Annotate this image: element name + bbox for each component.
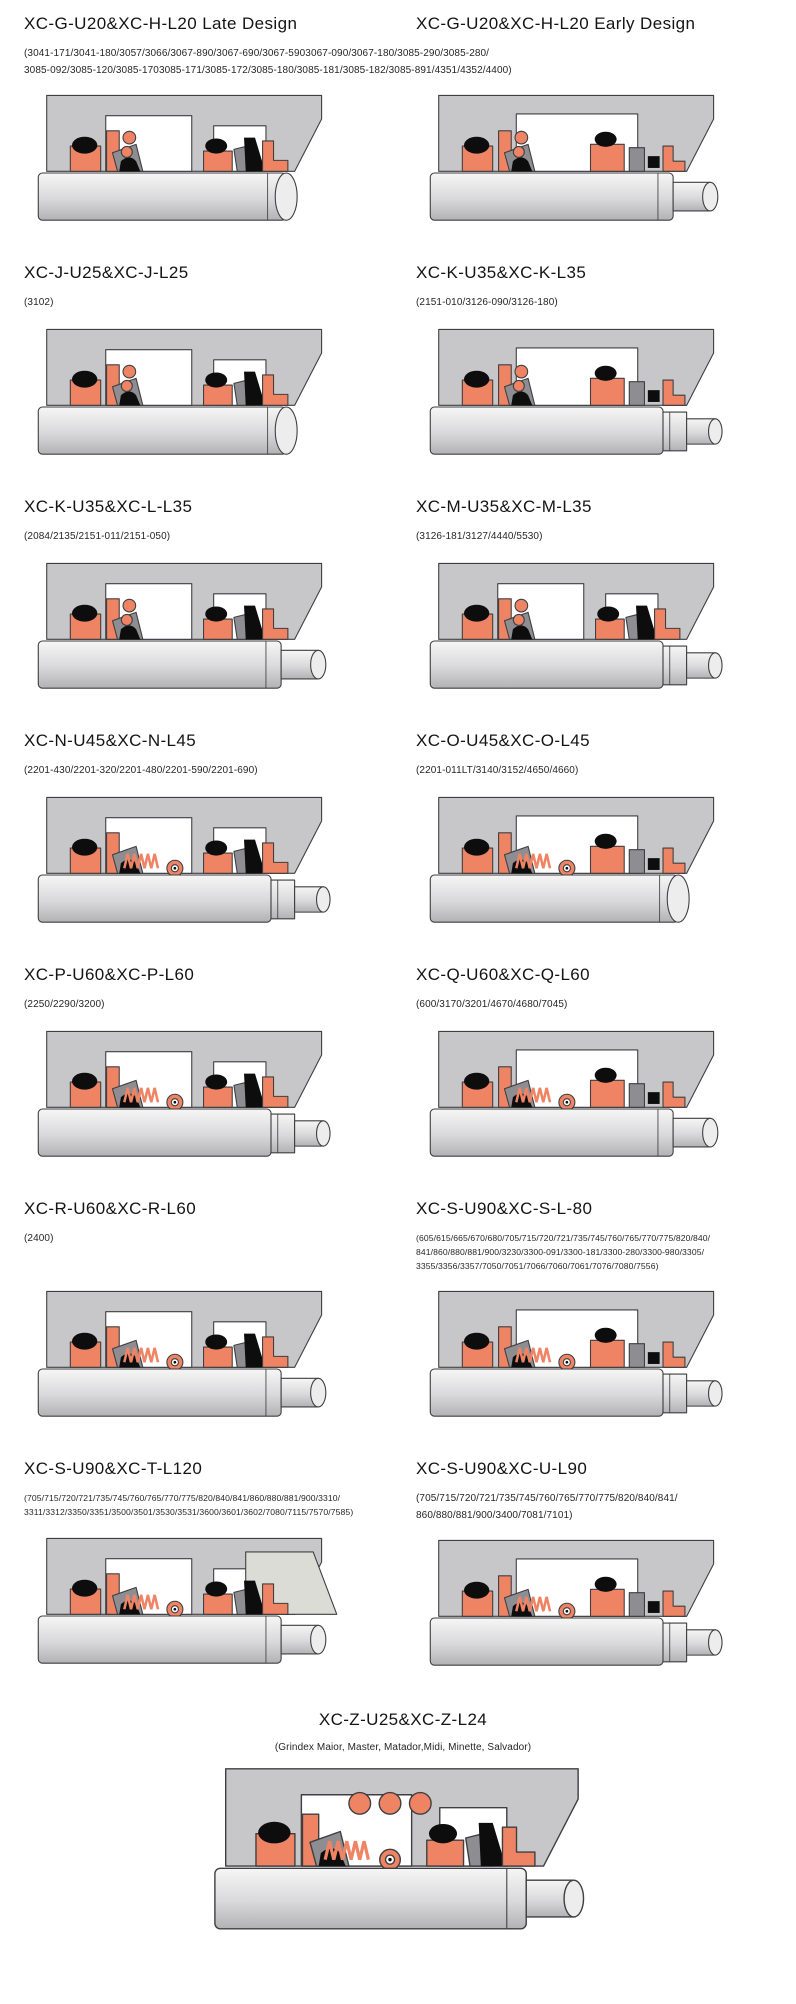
seal-cross-section-diagram — [416, 789, 738, 945]
part-numbers-line: (705/715/720/721/735/745/760/765/770/775… — [24, 1491, 390, 1505]
part-numbers-line: 860/880/881/900/3400/7081/7101) — [416, 1508, 782, 1525]
part-numbers-line: 3311/3312/3350/3351/3500/3501/3530/3531/… — [24, 1505, 390, 1519]
part-numbers-line: 3355/3356/3357/7050/7051/7066/7060/7061/… — [416, 1259, 782, 1273]
catalog-row-5: XC-P-U60&XC-P-L60 (2250/2290/3200) XC-Q-… — [24, 965, 782, 1179]
catalog-entry-bottom: XC-Z-U25&XC-Z-L24 (Grindex Maior, Master… — [24, 1710, 782, 1958]
seal-model-title: XC-P-U60&XC-P-L60 — [24, 965, 390, 985]
seal-cross-section-diagram — [416, 1023, 738, 1179]
catalog-entry: XC-P-U60&XC-P-L60 (2250/2290/3200) — [24, 965, 390, 1179]
part-numbers-line: (2201-011LT/3140/3152/4650/4660) — [416, 763, 782, 780]
seal-model-title: XC-Q-U60&XC-Q-L60 — [416, 965, 782, 985]
seal-cross-section-diagram — [416, 1283, 738, 1439]
seal-model-title: XC-S-U90&XC-T-L120 — [24, 1459, 390, 1479]
part-numbers-line: 3085-092/3085-120/3085-1703085-171/3085-… — [24, 63, 782, 80]
seal-cross-section-diagram — [24, 1283, 346, 1439]
part-numbers-line: (2151-010/3126-090/3126-180) — [416, 295, 782, 312]
catalog-row-2: XC-J-U25&XC-J-L25 (3102) XC-K-U35&XC-K-L… — [24, 263, 782, 477]
part-numbers-line: (3041-171/3041-180/3057/3066/3067-890/30… — [24, 46, 782, 63]
part-numbers-line: (705/715/720/721/735/745/760/765/770/775… — [416, 1491, 782, 1508]
part-numbers: (2400) — [24, 1231, 390, 1275]
seal-model-title: XC-S-U90&XC-U-L90 — [416, 1459, 782, 1479]
catalog-entry: XC-J-U25&XC-J-L25 (3102) — [24, 263, 390, 477]
seal-cross-section-diagram — [24, 555, 346, 711]
catalog-row-3: XC-K-U35&XC-L-L35 (2084/2135/2151-011/21… — [24, 497, 782, 711]
part-numbers: (2250/2290/3200) — [24, 997, 390, 1015]
part-numbers: (2151-010/3126-090/3126-180) — [416, 295, 782, 313]
catalog-entry: XC-Q-U60&XC-Q-L60 (600/3170/3201/4670/46… — [416, 965, 782, 1179]
catalog-entry: XC-R-U60&XC-R-L60 (2400) — [24, 1199, 390, 1439]
seal-cross-section-diagram — [24, 1023, 346, 1179]
part-numbers: (705/715/720/721/735/745/760/765/770/775… — [24, 1491, 390, 1522]
catalog-entry: XC-K-U35&XC-K-L35 (2151-010/3126-090/312… — [416, 263, 782, 477]
seal-cross-section-diagram — [24, 321, 346, 477]
seal-cross-section-diagram — [416, 555, 738, 711]
part-numbers: (2084/2135/2151-011/2151-050) — [24, 529, 390, 547]
seal-model-title: XC-K-U35&XC-L-L35 — [24, 497, 390, 517]
part-numbers-line: (2250/2290/3200) — [24, 997, 390, 1014]
catalog-row-4: XC-N-U45&XC-N-L45 (2201-430/2201-320/220… — [24, 731, 782, 945]
seal-catalog-page: XC-G-U20&XC-H-L20 Late Design XC-G-U20&X… — [0, 0, 796, 1958]
part-numbers-line: (3126-181/3127/4440/5530) — [416, 529, 782, 546]
part-numbers: (3126-181/3127/4440/5530) — [416, 529, 782, 547]
part-numbers-line: (2201-430/2201-320/2201-480/2201-590/220… — [24, 763, 390, 780]
part-numbers-line: 841/860/880/881/900/3230/3300-091/3300-1… — [416, 1245, 782, 1259]
catalog-entry: XC-N-U45&XC-N-L45 (2201-430/2201-320/220… — [24, 731, 390, 945]
part-numbers-line: (3102) — [24, 295, 390, 312]
seal-cross-section-diagram — [416, 321, 738, 477]
part-numbers: (600/3170/3201/4670/4680/7045) — [416, 997, 782, 1015]
catalog-row-6: XC-R-U60&XC-R-L60 (2400) XC-S-U90&XC-S-L… — [24, 1199, 782, 1439]
catalog-row-7: XC-S-U90&XC-T-L120 (705/715/720/721/735/… — [24, 1459, 782, 1688]
part-numbers-line: (605/615/665/670/680/705/715/720/721/735… — [416, 1231, 782, 1245]
seal-cross-section-diagram — [416, 87, 738, 243]
seal-cross-section-diagram — [188, 1758, 618, 1958]
seal-model-title: XC-G-U20&XC-H-L20 Late Design — [24, 14, 390, 34]
part-numbers: (2201-430/2201-320/2201-480/2201-590/220… — [24, 763, 390, 781]
part-numbers-line: (600/3170/3201/4670/4680/7045) — [416, 997, 782, 1014]
seal-model-title: XC-O-U45&XC-O-L45 — [416, 731, 782, 751]
seal-model-title: XC-M-U35&XC-M-L35 — [416, 497, 782, 517]
seal-cross-section-diagram — [416, 1532, 738, 1688]
seal-cross-section-diagram — [24, 87, 346, 243]
seal-model-title: XC-N-U45&XC-N-L45 — [24, 731, 390, 751]
catalog-entry: XC-S-U90&XC-U-L90 (705/715/720/721/735/7… — [416, 1459, 782, 1688]
part-numbers-line: (Grindex Maior, Master, Matador,Midi, Mi… — [24, 1740, 782, 1757]
seal-model-title: XC-K-U35&XC-K-L35 — [416, 263, 782, 283]
catalog-entry: XC-S-U90&XC-S-L-80 (605/615/665/670/680/… — [416, 1199, 782, 1439]
seal-model-title: XC-R-U60&XC-R-L60 — [24, 1199, 390, 1219]
seal-cross-section-diagram — [24, 789, 346, 945]
part-numbers-line: (2084/2135/2151-011/2151-050) — [24, 529, 390, 546]
catalog-entry: XC-K-U35&XC-L-L35 (2084/2135/2151-011/21… — [24, 497, 390, 711]
seal-model-title: XC-S-U90&XC-S-L-80 — [416, 1199, 782, 1219]
part-numbers-line: (2400) — [24, 1231, 390, 1248]
seal-model-title: XC-G-U20&XC-H-L20 Early Design — [416, 14, 782, 34]
part-numbers: (605/615/665/670/680/705/715/720/721/735… — [416, 1231, 782, 1275]
part-numbers: (Grindex Maior, Master, Matador,Midi, Mi… — [24, 1740, 782, 1758]
catalog-row-1: XC-G-U20&XC-H-L20 Late Design XC-G-U20&X… — [24, 14, 782, 243]
seal-model-title: XC-Z-U25&XC-Z-L24 — [319, 1710, 487, 1730]
catalog-entry: XC-M-U35&XC-M-L35 (3126-181/3127/4440/55… — [416, 497, 782, 711]
catalog-entry: XC-S-U90&XC-T-L120 (705/715/720/721/735/… — [24, 1459, 390, 1688]
seal-cross-section-diagram — [24, 1530, 346, 1686]
part-numbers: (3041-171/3041-180/3057/3066/3067-890/30… — [24, 46, 782, 79]
part-numbers: (2201-011LT/3140/3152/4650/4660) — [416, 763, 782, 781]
catalog-entry: XC-O-U45&XC-O-L45 (2201-011LT/3140/3152/… — [416, 731, 782, 945]
part-numbers: (3102) — [24, 295, 390, 313]
part-numbers: (705/715/720/721/735/745/760/765/770/775… — [416, 1491, 782, 1524]
seal-model-title: XC-J-U25&XC-J-L25 — [24, 263, 390, 283]
